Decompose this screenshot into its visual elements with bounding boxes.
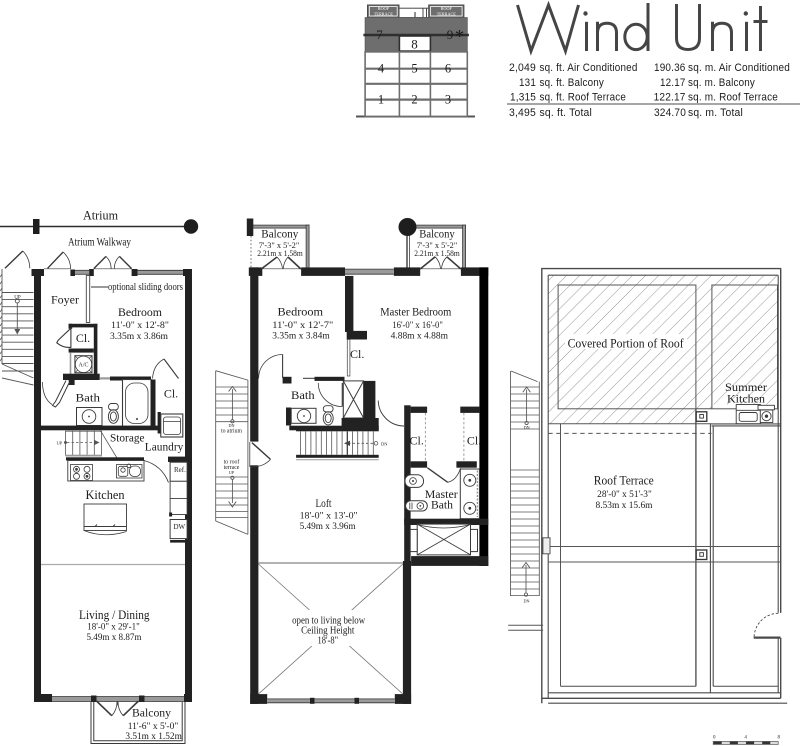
svg-text:5: 5 bbox=[411, 62, 417, 76]
svg-text:UP: UP bbox=[57, 440, 63, 445]
svg-text:3,495: 3,495 bbox=[509, 107, 536, 119]
svg-text:Cl.: Cl. bbox=[467, 434, 481, 448]
svg-text:4.88m x 4.88m: 4.88m x 4.88m bbox=[391, 330, 449, 341]
svg-text:Laundry: Laundry bbox=[145, 442, 184, 454]
svg-text:Bedroom: Bedroom bbox=[278, 305, 324, 319]
svg-text:18'-0" x 13'-0": 18'-0" x 13'-0" bbox=[300, 511, 358, 522]
svg-text:A/C: A/C bbox=[78, 363, 88, 369]
svg-text:1,315: 1,315 bbox=[510, 92, 536, 104]
svg-text:sq. ft. Balcony: sq. ft. Balcony bbox=[540, 77, 605, 89]
svg-text:2: 2 bbox=[411, 93, 417, 107]
svg-text:Bath: Bath bbox=[291, 388, 315, 402]
svg-text:5.49m x 3.96m: 5.49m x 3.96m bbox=[300, 521, 356, 532]
svg-text:324.70: 324.70 bbox=[654, 107, 686, 119]
svg-text:TERRACE: TERRACE bbox=[437, 11, 457, 16]
svg-text:8: 8 bbox=[411, 37, 418, 52]
svg-text:Cl.: Cl. bbox=[76, 331, 90, 345]
svg-text:sq. ft. Roof Terrace: sq. ft. Roof Terrace bbox=[540, 92, 627, 104]
svg-text:7: 7 bbox=[376, 27, 383, 42]
svg-text:9: 9 bbox=[447, 27, 454, 42]
svg-text:Living / Dining: Living / Dining bbox=[79, 607, 150, 622]
svg-text:3.35m x 3.86m: 3.35m x 3.86m bbox=[110, 331, 168, 342]
svg-text:sq. ft. Total: sq. ft. Total bbox=[540, 107, 593, 119]
svg-text:Kitchen: Kitchen bbox=[86, 488, 126, 502]
svg-text:3.51m x 1.52m: 3.51m x 1.52m bbox=[125, 731, 182, 742]
svg-text:Balcony: Balcony bbox=[419, 227, 455, 241]
svg-text:to atrium: to atrium bbox=[221, 428, 243, 434]
svg-text:Balcony: Balcony bbox=[261, 227, 298, 241]
svg-text:2.21m x 1.58m: 2.21m x 1.58m bbox=[414, 249, 460, 258]
svg-text:Cl.: Cl. bbox=[410, 434, 424, 448]
svg-text:sq. m. Total: sq. m. Total bbox=[688, 107, 743, 119]
svg-text:sq. m. Balcony: sq. m. Balcony bbox=[688, 77, 755, 89]
svg-text:131: 131 bbox=[519, 77, 536, 89]
svg-text:TERRACE: TERRACE bbox=[374, 11, 394, 16]
svg-text:optional sliding doors: optional sliding doors bbox=[108, 282, 183, 293]
svg-text:DW: DW bbox=[174, 523, 186, 531]
svg-text:Cl.: Cl. bbox=[164, 387, 178, 401]
svg-text:Balcony: Balcony bbox=[132, 705, 171, 719]
svg-text:Master Bedroom: Master Bedroom bbox=[380, 305, 452, 319]
svg-text:4: 4 bbox=[744, 736, 747, 741]
svg-text:2,049: 2,049 bbox=[509, 62, 536, 74]
svg-text:Bedroom: Bedroom bbox=[118, 305, 163, 319]
svg-text:5.49m x 8.87m: 5.49m x 8.87m bbox=[87, 632, 142, 643]
svg-text:18'-8": 18'-8" bbox=[318, 636, 339, 647]
svg-text:4: 4 bbox=[378, 62, 385, 76]
svg-text:122.17: 122.17 bbox=[654, 92, 686, 104]
svg-text:Ref.: Ref. bbox=[174, 466, 186, 474]
svg-text:DN: DN bbox=[524, 425, 530, 430]
svg-text:11'-0" x 12'-8": 11'-0" x 12'-8" bbox=[111, 320, 169, 331]
svg-text:Atrium: Atrium bbox=[83, 208, 118, 222]
svg-text:8: 8 bbox=[777, 736, 780, 741]
svg-text:3: 3 bbox=[445, 93, 451, 107]
svg-text:Bath: Bath bbox=[431, 498, 453, 512]
svg-text:UP: UP bbox=[14, 296, 21, 301]
svg-text:DN: DN bbox=[381, 442, 388, 447]
svg-text:sq. ft. Air Conditioned: sq. ft. Air Conditioned bbox=[540, 62, 638, 74]
svg-text:12.17: 12.17 bbox=[660, 77, 686, 89]
svg-text:DN: DN bbox=[228, 423, 234, 428]
svg-text:3.35m x 3.84m: 3.35m x 3.84m bbox=[272, 330, 330, 341]
svg-text:0: 0 bbox=[713, 736, 716, 741]
svg-text:UP: UP bbox=[229, 470, 235, 475]
svg-text:6: 6 bbox=[445, 62, 451, 76]
svg-text:Atrium Walkway: Atrium Walkway bbox=[68, 234, 131, 248]
svg-text:sq. m. Roof Terrace: sq. m. Roof Terrace bbox=[688, 92, 778, 104]
svg-text:DN: DN bbox=[523, 599, 529, 604]
svg-text:2.21m x 1.58m: 2.21m x 1.58m bbox=[257, 249, 303, 258]
svg-text:Foyer: Foyer bbox=[51, 293, 79, 307]
svg-text:Bath: Bath bbox=[76, 390, 101, 404]
svg-text:8.53m x 15.6m: 8.53m x 15.6m bbox=[596, 501, 654, 511]
svg-text:Kitchen: Kitchen bbox=[727, 391, 765, 405]
svg-text:190.36: 190.36 bbox=[654, 62, 686, 74]
svg-text:Cl.: Cl. bbox=[350, 347, 364, 361]
svg-text:Roof Terrace: Roof Terrace bbox=[594, 474, 654, 488]
svg-text:Covered Portion of Roof: Covered Portion of Roof bbox=[568, 337, 685, 351]
svg-text:Loft: Loft bbox=[316, 498, 333, 510]
svg-text:28'-0" x 51'-3": 28'-0" x 51'-3" bbox=[597, 490, 652, 500]
svg-text:sq. m. Air Conditioned: sq. m. Air Conditioned bbox=[688, 62, 790, 74]
svg-text:1: 1 bbox=[378, 93, 384, 107]
svg-text:Storage: Storage bbox=[110, 432, 145, 444]
svg-text:*: * bbox=[455, 27, 465, 48]
